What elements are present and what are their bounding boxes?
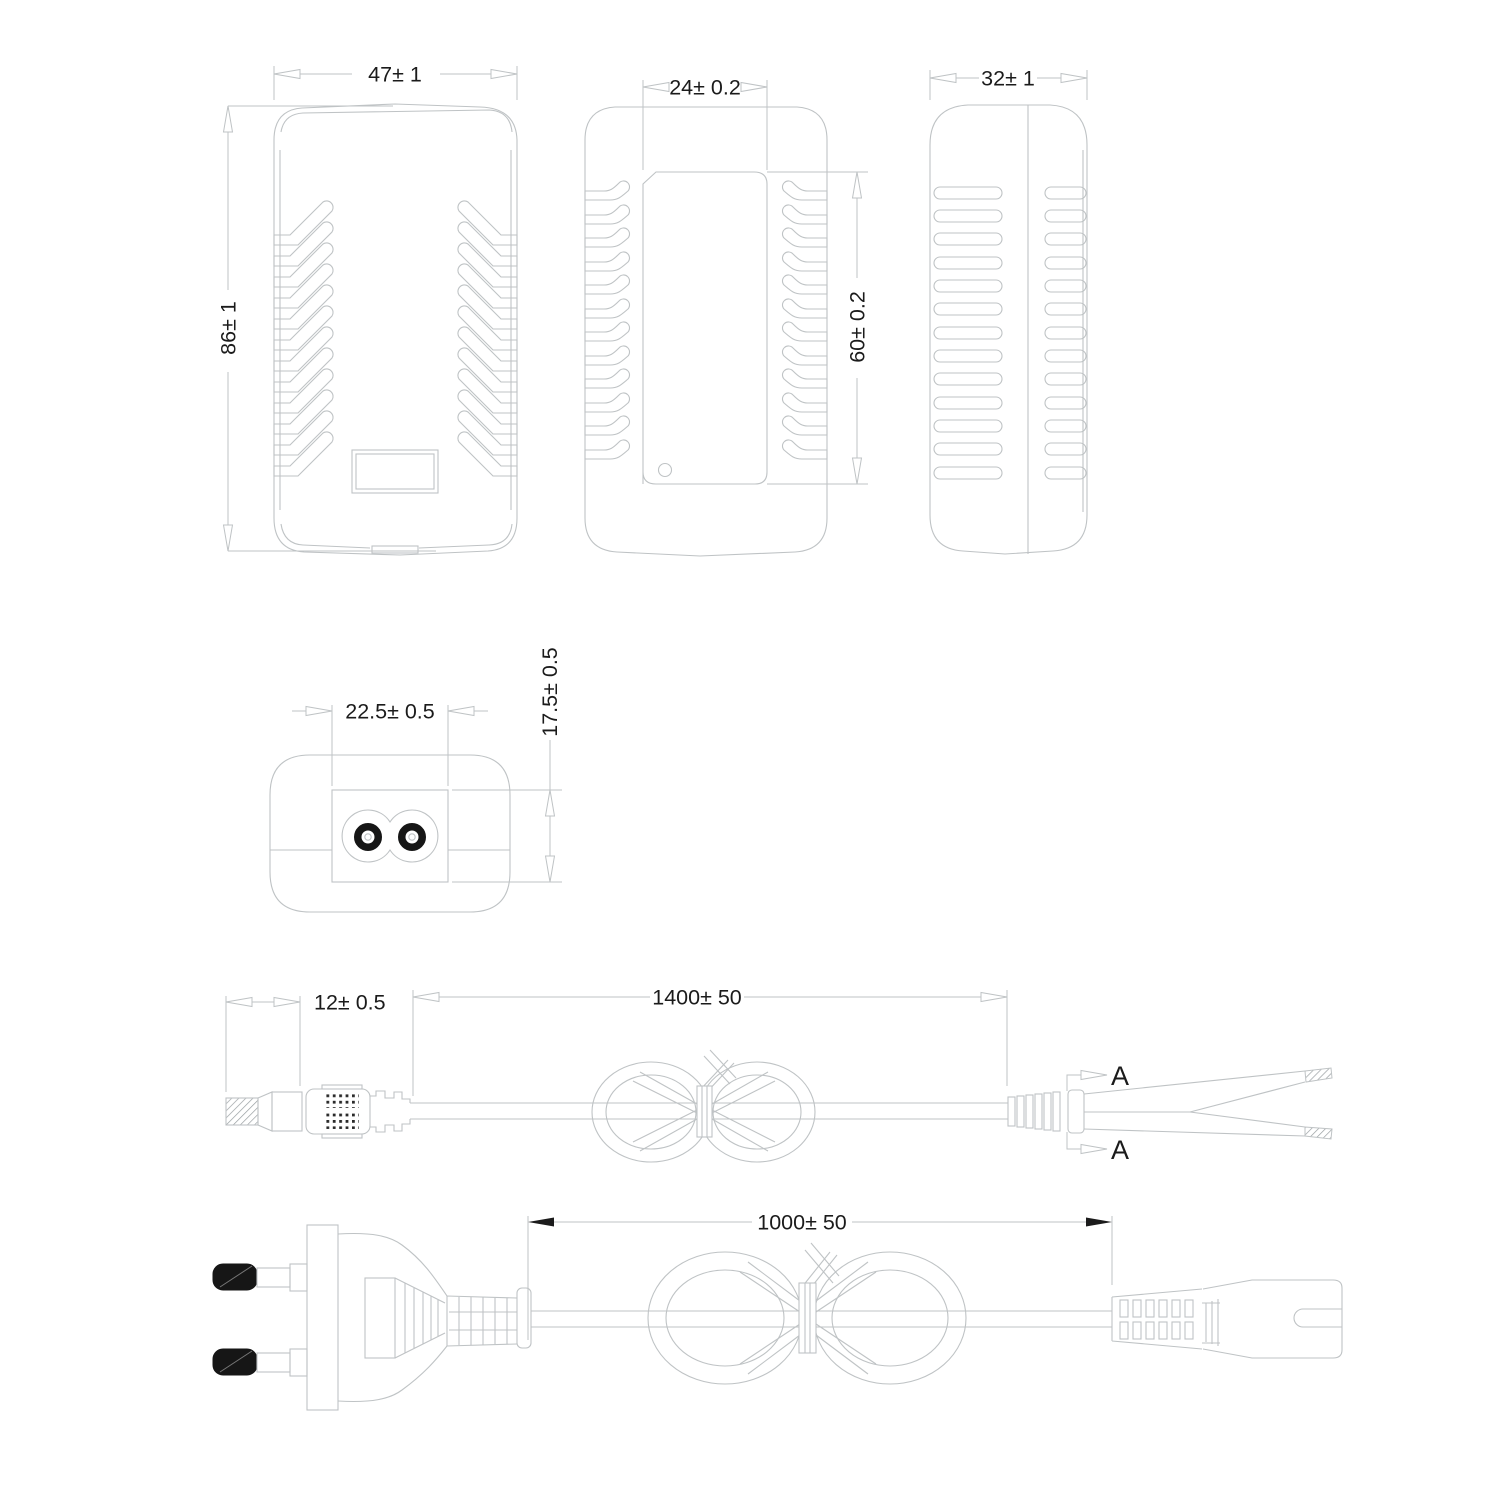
wire-tip-top	[1305, 1068, 1332, 1082]
dim-text-17-5: 17.5± 0.5	[538, 647, 562, 737]
side-left-slots	[934, 187, 1002, 479]
dc-collar	[1068, 1090, 1084, 1133]
section-label-top: A	[1111, 1061, 1129, 1091]
inner-view	[585, 107, 827, 556]
label-plate	[352, 450, 438, 493]
technical-drawing-page: 47± 1 86± 1 24± 0.2	[0, 0, 1500, 1500]
front-right-vents	[458, 201, 517, 476]
dim-front-height: 86± 1	[217, 106, 437, 551]
plug-collar	[517, 1288, 531, 1348]
ac-cord-drawing	[213, 1225, 1342, 1410]
dim-text-47: 47± 1	[368, 63, 422, 87]
section-label-bottom: A	[1111, 1135, 1129, 1165]
bottom-latch-tab	[372, 546, 418, 553]
dc-strain-relief	[1008, 1090, 1084, 1133]
dim-dc-plug: 12± 0.5	[226, 991, 386, 1093]
dim-text-1400: 1400± 50	[652, 986, 742, 1010]
dim-inlet-width: 22.5± 0.5	[292, 700, 488, 787]
inlet-pin-left	[355, 824, 382, 851]
dim-ac-length: 1000± 50	[528, 1211, 1112, 1341]
dim-text-12: 12± 0.5	[314, 991, 386, 1015]
inlet-pin-right	[399, 824, 426, 851]
dim-inner-width: 24± 0.2	[643, 76, 767, 171]
dim-text-32: 32± 1	[981, 67, 1035, 91]
side-right-slots	[1045, 187, 1086, 479]
front-left-vents	[274, 201, 333, 476]
ac-cable-bow	[648, 1243, 966, 1384]
section-mark-a-top: A	[1067, 1061, 1129, 1091]
dim-inlet-height: 17.5± 0.5	[452, 647, 562, 882]
dim-text-24: 24± 0.2	[669, 76, 741, 100]
dc-barrel-plug	[226, 1085, 410, 1138]
dim-text-86: 86± 1	[217, 301, 241, 355]
c7-slot	[1294, 1309, 1342, 1327]
front-view	[274, 104, 517, 555]
grip-dots-top	[325, 1092, 359, 1108]
eu-plug	[213, 1225, 531, 1410]
inner-panel	[643, 172, 767, 484]
dc-cable-drawing	[226, 1050, 1332, 1162]
section-mark-a-bottom: A	[1067, 1132, 1129, 1165]
side-view	[930, 105, 1087, 554]
dim-side-width: 32± 1	[930, 67, 1087, 101]
dim-front-width: 47± 1	[274, 63, 517, 101]
cable-tie	[697, 1086, 712, 1137]
adapter-dimension-drawing: 47± 1 86± 1 24± 0.2	[0, 0, 1500, 1500]
grip-dots-bottom	[325, 1113, 359, 1129]
bottom-view	[270, 755, 510, 912]
dc-cable-bow	[592, 1050, 815, 1162]
wire-tip-bottom	[1305, 1127, 1332, 1139]
cable-tie	[799, 1283, 816, 1353]
dim-text-1000: 1000± 50	[757, 1211, 847, 1235]
panel-hole	[659, 464, 672, 477]
dim-text-60: 60± 0.2	[846, 291, 870, 363]
c7-connector	[1112, 1280, 1342, 1358]
dim-text-22-5: 22.5± 0.5	[345, 700, 435, 724]
inner-right-vents	[782, 181, 827, 459]
plug-face-plate	[307, 1225, 338, 1410]
inner-left-vents	[585, 181, 630, 459]
inlet-recess	[332, 790, 448, 882]
